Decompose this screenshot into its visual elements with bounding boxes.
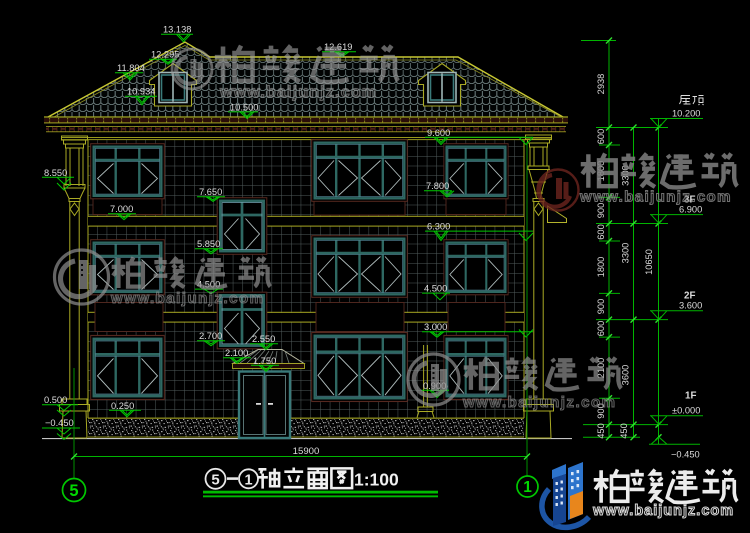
svg-text:1.750: 1.750 <box>253 356 276 366</box>
svg-text:10.500: 10.500 <box>230 102 258 112</box>
svg-text:1F: 1F <box>685 391 696 402</box>
svg-text:1800: 1800 <box>596 257 606 278</box>
svg-text:3.600: 3.600 <box>679 301 702 311</box>
svg-text:1: 1 <box>523 479 532 496</box>
svg-text:7.000: 7.000 <box>110 204 133 214</box>
svg-text:450: 450 <box>596 423 606 439</box>
svg-text:15900: 15900 <box>293 446 320 457</box>
svg-text:±0.000: ±0.000 <box>672 406 700 416</box>
svg-text:600: 600 <box>596 129 606 145</box>
svg-text:0.500: 0.500 <box>44 395 67 405</box>
svg-text:www.baijunjz.com: www.baijunjz.com <box>219 84 377 101</box>
svg-text:3600: 3600 <box>621 365 631 386</box>
svg-text:3300: 3300 <box>621 243 631 264</box>
svg-text:www.baijunjz.com: www.baijunjz.com <box>462 394 616 411</box>
svg-text:1: 1 <box>244 472 252 488</box>
svg-text:−0.450: −0.450 <box>45 418 74 428</box>
svg-text:600: 600 <box>596 321 606 337</box>
svg-text:www.baijunjz.com: www.baijunjz.com <box>592 503 734 519</box>
svg-text:13.138: 13.138 <box>163 25 191 35</box>
svg-text:2.100: 2.100 <box>225 348 248 358</box>
svg-text:1:100: 1:100 <box>354 470 399 490</box>
svg-text:8.550: 8.550 <box>44 168 67 178</box>
svg-text:11.804: 11.804 <box>117 63 145 73</box>
svg-text:2938: 2938 <box>596 74 606 95</box>
svg-text:10.200: 10.200 <box>672 108 700 118</box>
svg-text:7.650: 7.650 <box>199 187 222 197</box>
svg-text:10650: 10650 <box>644 249 654 275</box>
svg-text:www.baijunjz.com: www.baijunjz.com <box>579 189 732 206</box>
svg-text:4.500: 4.500 <box>424 284 447 294</box>
svg-text:2.550: 2.550 <box>252 334 275 344</box>
svg-text:3.000: 3.000 <box>424 322 447 332</box>
svg-text:−0.450: −0.450 <box>671 450 700 460</box>
svg-text:10.934: 10.934 <box>127 87 155 97</box>
svg-text:5: 5 <box>211 471 219 488</box>
svg-text:2.700: 2.700 <box>199 331 222 341</box>
svg-text:450: 450 <box>619 423 629 439</box>
svg-text:2F: 2F <box>684 291 695 302</box>
svg-text:6.900: 6.900 <box>679 204 702 214</box>
svg-text:9.600: 9.600 <box>427 128 450 138</box>
svg-text:6.300: 6.300 <box>427 222 450 232</box>
svg-text:5: 5 <box>69 482 78 500</box>
svg-text:5.850: 5.850 <box>197 239 220 249</box>
svg-text:7.800: 7.800 <box>426 181 449 191</box>
svg-text:0.250: 0.250 <box>111 401 134 411</box>
svg-text:600: 600 <box>596 224 606 240</box>
svg-text:900: 900 <box>596 299 606 315</box>
svg-text:www.baijunjz.com: www.baijunjz.com <box>110 290 264 307</box>
